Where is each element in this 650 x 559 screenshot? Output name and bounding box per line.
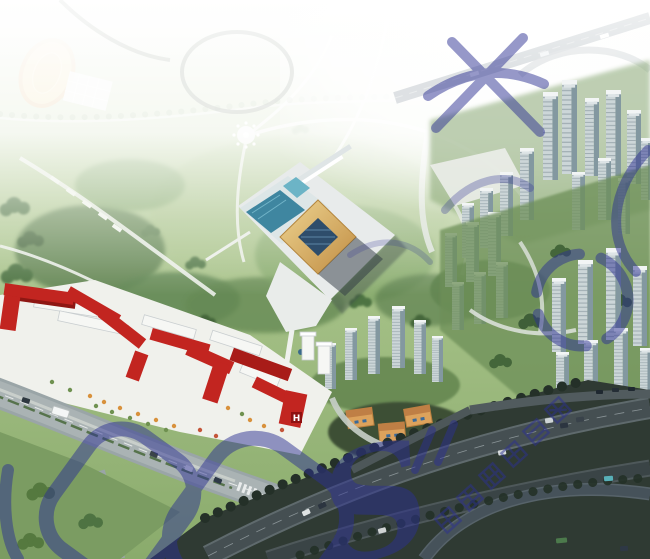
top-haze-strip [0, 0, 650, 70]
aerial-rendering: H [0, 0, 650, 559]
hotel-sign-letter: H [293, 414, 301, 424]
hotel-sign: H [291, 412, 302, 424]
